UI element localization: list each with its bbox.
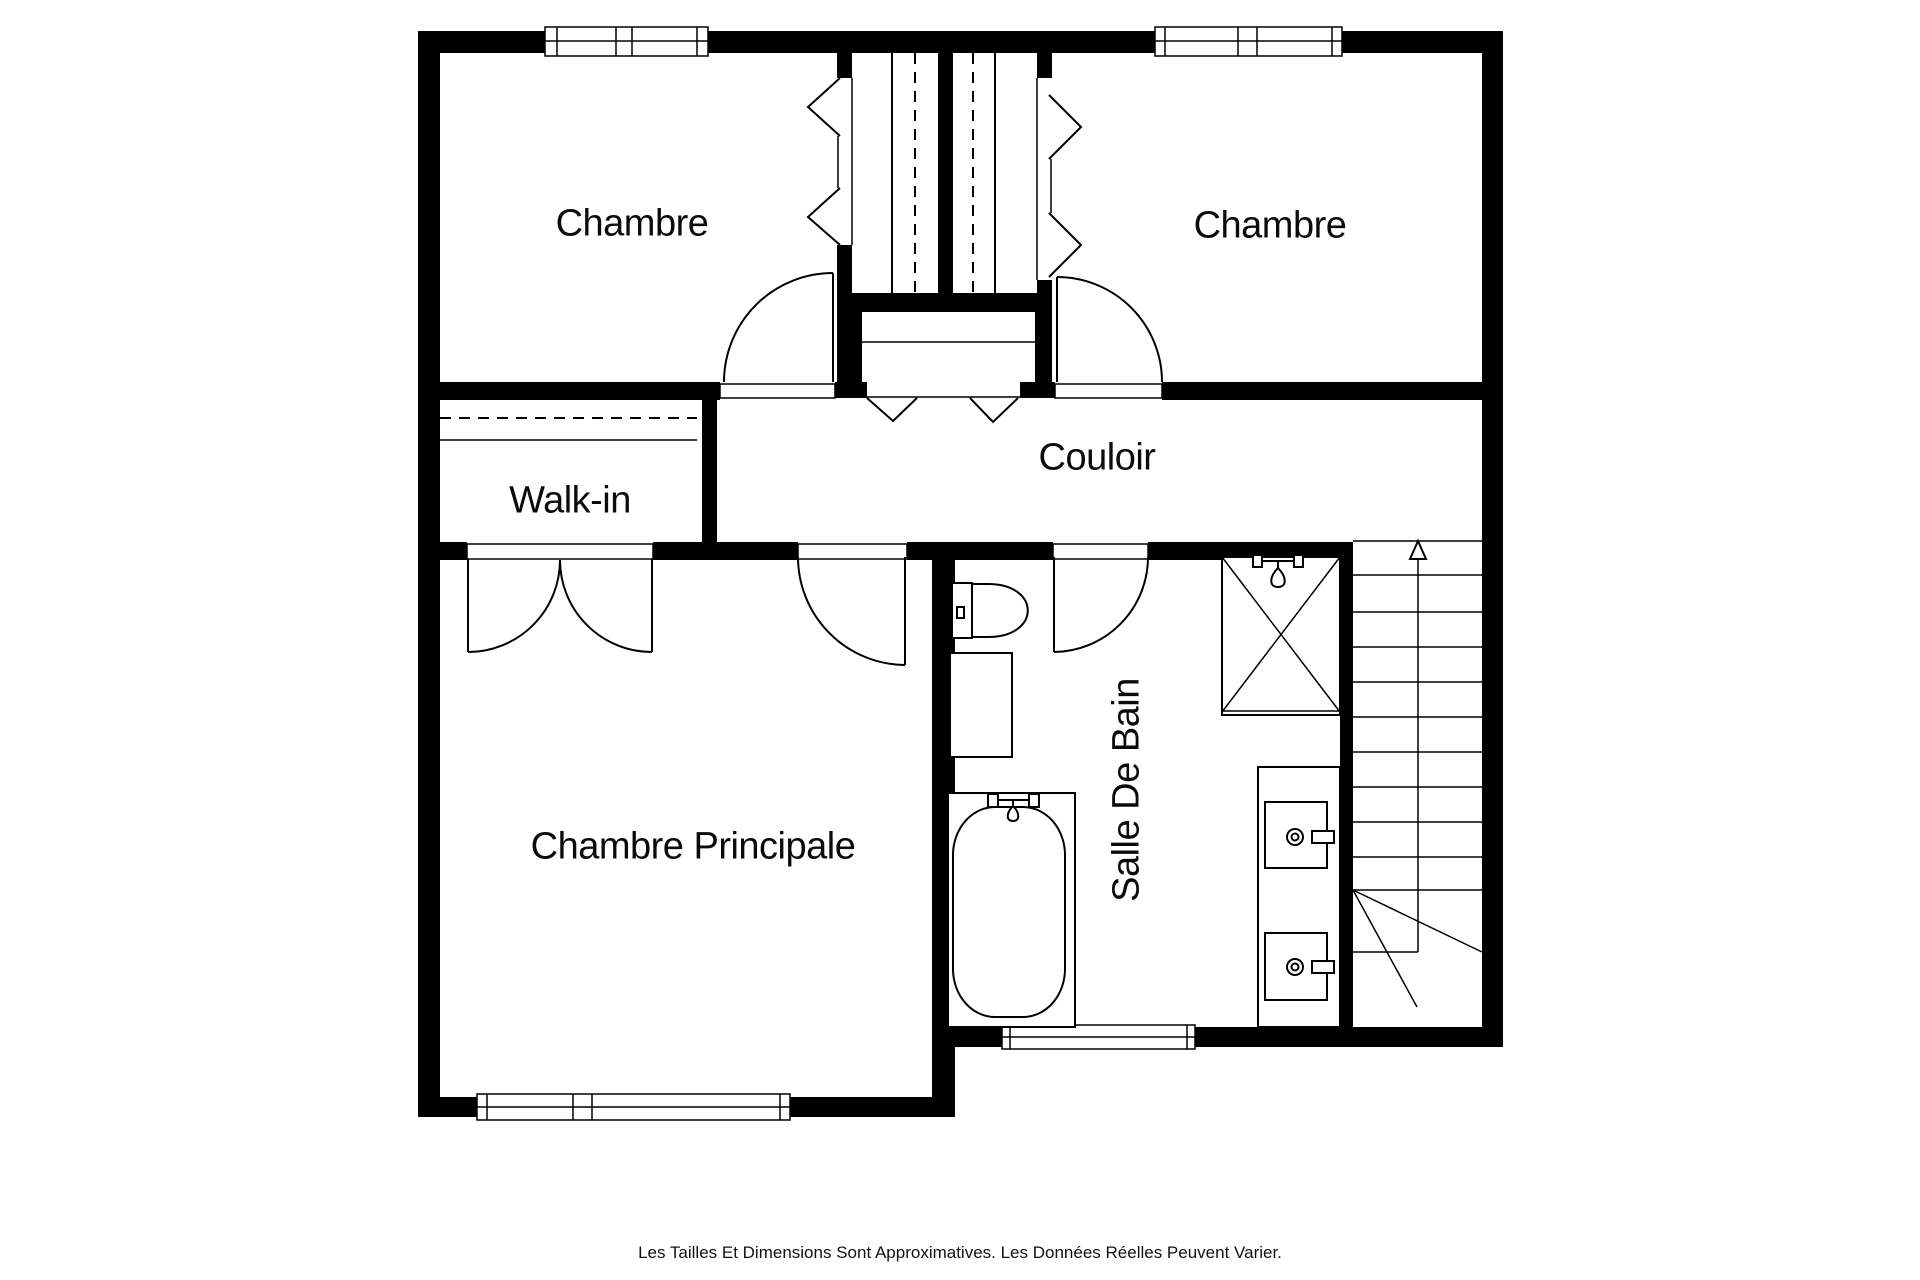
window-bedroom-right [1155,27,1342,56]
room-label-bathroom: Salle De Bain [1106,678,1149,902]
door-master-bedroom [798,557,905,665]
disclaimer-text: Les Tailles Et Dimensions Sont Approxima… [638,1243,1282,1263]
stairs-up-arrow-icon [1410,541,1426,559]
closet-bedroom-left [808,53,915,293]
door-bathroom [1054,557,1148,652]
washbasin-cabinet [950,653,1012,757]
room-label-walk-in: Walk-in [509,480,631,523]
room-label-hallway: Couloir [1039,437,1156,480]
closet-bedroom-right [973,53,1081,293]
bathtub [948,793,1075,1027]
room-label-bedroom-right: Chambre [1194,205,1347,248]
staircase [1353,541,1482,1007]
door-bedroom-right [1057,277,1162,382]
door-bedroom-left [724,273,833,382]
window-bedroom-left [545,27,708,56]
room-label-master-bedroom: Chambre Principale [531,826,856,869]
room-label-bedroom-left: Chambre [556,203,709,246]
window-master-bedroom [477,1094,790,1120]
linen-closet [862,342,1035,422]
floor-plan-drawing [0,0,1920,1280]
floor-plan: Chambre Chambre Couloir Walk-in Chambre … [0,0,1920,1280]
double-sink-vanity [1258,767,1340,1027]
walk-in-shelf [440,418,697,440]
shower-stall [1222,555,1340,715]
toilet [952,583,1028,638]
double-door-walk-in [468,559,652,652]
window-bathroom [1002,1025,1195,1049]
